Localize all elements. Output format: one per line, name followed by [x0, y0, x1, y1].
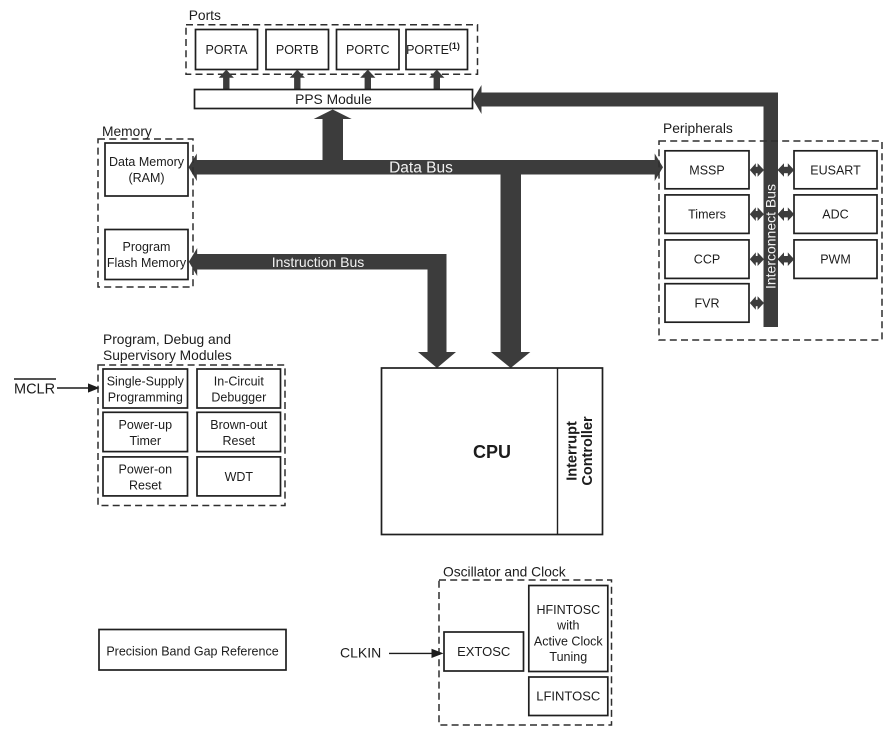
- svg-text:Active Clock: Active Clock: [534, 634, 604, 648]
- svg-text:In-Circuit: In-Circuit: [214, 375, 265, 389]
- svg-text:Data Memory: Data Memory: [109, 155, 185, 169]
- svg-text:Single-Supply: Single-Supply: [107, 375, 185, 389]
- svg-text:PORTB: PORTB: [276, 43, 319, 57]
- svg-text:Reset: Reset: [222, 434, 255, 448]
- svg-text:Supervisory Modules: Supervisory Modules: [103, 348, 232, 363]
- svg-text:Flash Memory: Flash Memory: [107, 256, 187, 270]
- svg-text:(RAM): (RAM): [128, 171, 164, 185]
- svg-text:PWM: PWM: [820, 253, 851, 267]
- svg-text:Timers: Timers: [688, 208, 726, 222]
- svg-text:Interconnect Bus: Interconnect Bus: [763, 184, 779, 289]
- svg-text:Programming: Programming: [108, 391, 183, 405]
- svg-text:Instruction Bus: Instruction Bus: [272, 254, 365, 270]
- svg-text:Precision Band Gap Reference: Precision Band Gap Reference: [106, 645, 278, 659]
- svg-text:Debugger: Debugger: [211, 391, 266, 405]
- svg-text:WDT: WDT: [225, 470, 254, 484]
- svg-text:PORTC: PORTC: [346, 43, 390, 57]
- svg-text:Program, Debug and: Program, Debug and: [103, 332, 231, 347]
- svg-text:Timer: Timer: [130, 434, 161, 448]
- svg-text:CCP: CCP: [694, 253, 720, 267]
- svg-text:Brown-out: Brown-out: [210, 418, 267, 432]
- svg-text:Program: Program: [123, 240, 171, 254]
- svg-text:Interrupt: Interrupt: [565, 421, 581, 481]
- svg-text:Memory: Memory: [102, 124, 152, 139]
- svg-text:Data Bus: Data Bus: [389, 160, 453, 177]
- svg-text:LFINTOSC: LFINTOSC: [536, 689, 600, 704]
- svg-text:MCLR: MCLR: [14, 381, 55, 397]
- svg-text:Tuning: Tuning: [549, 650, 587, 664]
- svg-text:CLKIN: CLKIN: [340, 645, 381, 661]
- svg-text:ADC: ADC: [822, 208, 848, 222]
- svg-text:Peripherals: Peripherals: [663, 121, 733, 136]
- svg-text:CPU: CPU: [473, 442, 511, 462]
- svg-text:with: with: [556, 619, 579, 633]
- svg-text:HFINTOSC: HFINTOSC: [536, 603, 600, 617]
- svg-text:Power-up: Power-up: [119, 418, 173, 432]
- svg-text:PORTA: PORTA: [206, 43, 249, 57]
- svg-text:MSSP: MSSP: [689, 164, 724, 178]
- svg-text:Reset: Reset: [129, 479, 162, 493]
- svg-text:EUSART: EUSART: [810, 164, 861, 178]
- svg-text:EXTOSC: EXTOSC: [457, 644, 510, 659]
- svg-text:Controller: Controller: [580, 416, 596, 486]
- svg-text:PPS Module: PPS Module: [295, 92, 372, 107]
- svg-text:FVR: FVR: [695, 297, 720, 311]
- svg-text:Ports: Ports: [189, 8, 221, 23]
- svg-text:Oscillator and Clock: Oscillator and Clock: [443, 565, 566, 580]
- svg-text:Power-on: Power-on: [119, 463, 173, 477]
